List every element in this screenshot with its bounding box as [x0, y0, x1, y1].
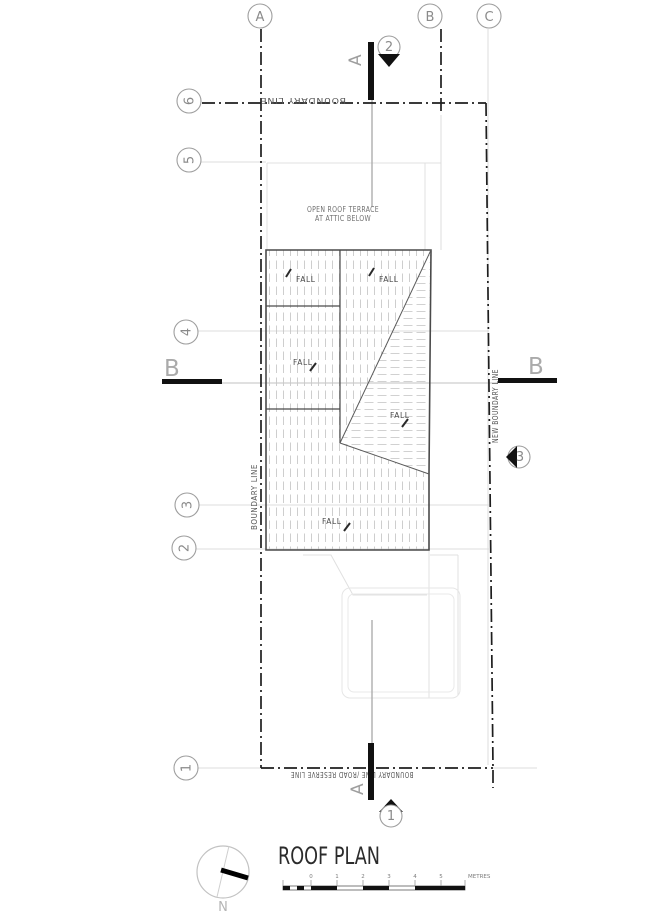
section-letter-top: A	[346, 54, 366, 66]
north-label: N	[218, 900, 228, 915]
section-marker-top: A 2	[346, 36, 400, 100]
grid-row-label-1: 1	[180, 764, 195, 772]
grid-row-bubbles: 6 5 4 3 2 1	[172, 89, 201, 780]
scale-tick-label: 3	[387, 874, 391, 880]
grid-row-label-5: 5	[183, 156, 198, 164]
fall-label: FALL	[293, 358, 313, 367]
terrace-note-line1: OPEN ROOF TERRACE	[307, 205, 379, 214]
scale-tick-label: 1	[335, 874, 339, 880]
roof-plan-sheet: FALL FALL FALL FALL FALL OPEN ROOF TERRA…	[0, 0, 649, 918]
grid-column-label-b: B	[426, 10, 435, 25]
grid-row-label-2: 2	[178, 544, 193, 552]
section-arrow-down	[378, 54, 400, 67]
scale-tick-label: 5	[439, 874, 443, 880]
roof-plan-drawing: FALL FALL FALL FALL FALL OPEN ROOF TERRA…	[0, 0, 649, 918]
north-arrow: N	[197, 846, 249, 915]
scale-bar: 0 1 2 3 4 5 METRES	[283, 874, 491, 890]
section-number-bottom: 1	[387, 809, 395, 824]
section-marker-bottom: A 1	[348, 743, 403, 827]
section-number-top: 2	[385, 40, 393, 55]
section-marker-right: 3	[506, 446, 530, 468]
scale-tick-label: 2	[361, 874, 365, 880]
grid-row-label-4: 4	[180, 328, 195, 336]
section-number-right: 3	[516, 450, 524, 465]
fall-label: FALL	[390, 411, 410, 420]
scale-tick-label: 0	[309, 874, 313, 880]
boundary-label-left: BOUNDARY LINE	[250, 464, 259, 530]
hatch-left-column	[266, 250, 340, 550]
grid-column-label-c: C	[484, 10, 493, 25]
grid-row-label-3: 3	[181, 501, 196, 509]
fall-label: FALL	[322, 517, 342, 526]
boundary-label-bottom: BOUNDARY LINE /ROAD RESERVE LINE	[291, 770, 414, 779]
terrace-note-line2: AT ATTIC BELOW	[315, 214, 371, 223]
fall-label: FALL	[379, 275, 399, 284]
compass-needle	[221, 870, 248, 878]
scale-tick-label: 4	[413, 874, 417, 880]
terrace-note: OPEN ROOF TERRACE AT ATTIC BELOW	[307, 205, 379, 223]
section-b-label-right: B	[528, 354, 544, 380]
section-letter-bottom: A	[348, 783, 368, 795]
grid-column-bubbles: A B C	[248, 4, 501, 28]
boundary-label-top: BOUNDARY LINE	[260, 96, 346, 105]
fall-label: FALL	[296, 275, 316, 284]
section-b-label-left: B	[164, 356, 180, 382]
grid-column-label-a: A	[256, 10, 265, 25]
roof-hatch-regions	[266, 250, 431, 550]
drawing-title: ROOF PLAN	[278, 842, 380, 870]
scale-unit-label: METRES	[468, 874, 491, 880]
grid-row-label-6: 6	[183, 97, 198, 105]
boundary-line-right	[486, 103, 493, 788]
